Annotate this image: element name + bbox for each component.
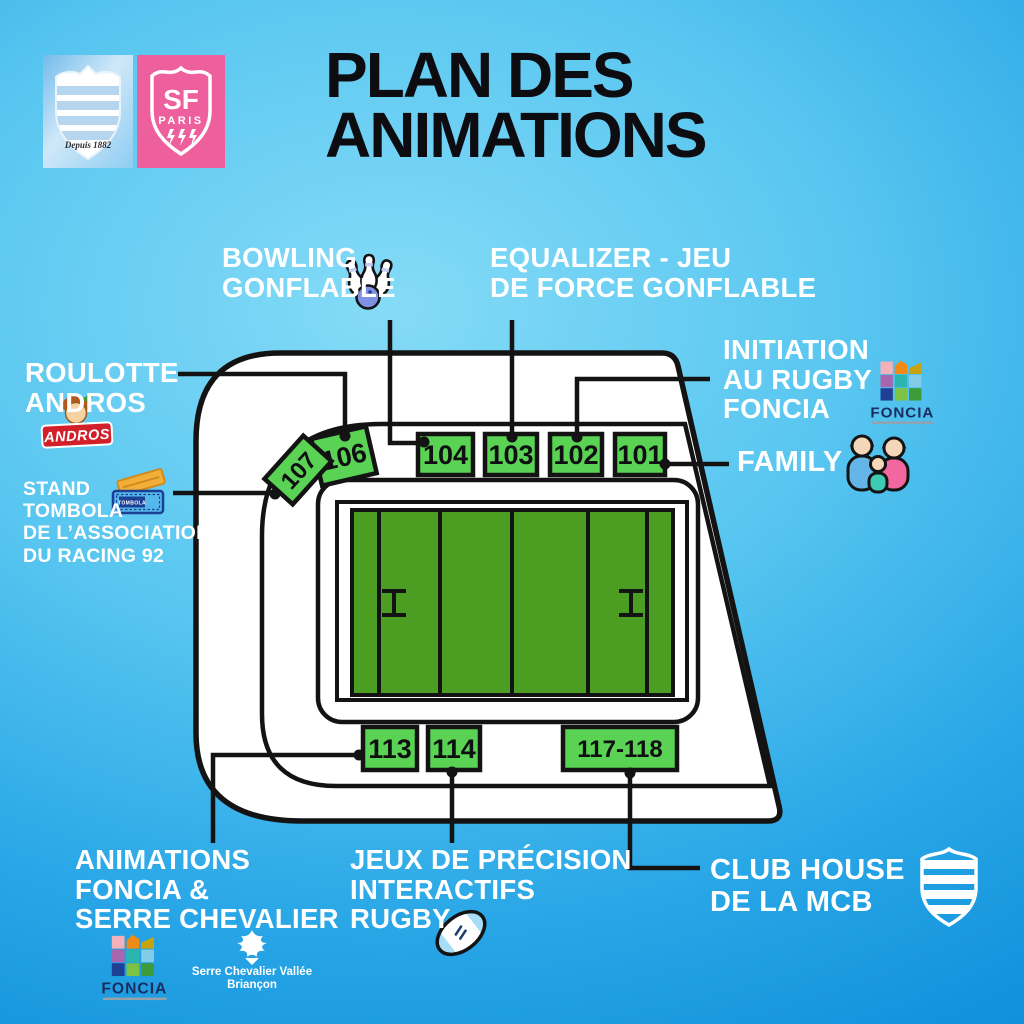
poster-stadium-animations: FONCIA 106 [0,0,1024,1024]
serre-text-line2: Briançon [227,979,277,991]
roulotte-andros-label: ROULOTTE ANDROS [25,358,179,417]
page-title-line2: ANIMATIONS [325,106,706,166]
equalizer-label-line2: DE FORCE GONFLABLE [490,273,816,303]
stand-114: 114 [428,727,480,770]
tombola-label-line4: DU RACING 92 [23,545,211,567]
bowling-label: BOWLING GONFLABLE [222,243,396,302]
mcb-shield-icon [922,849,976,925]
svg-text:103: 103 [488,440,533,470]
equalizer-label: EQUALIZER - JEU DE FORCE GONFLABLE [490,243,816,302]
page-title: PLAN DES ANIMATIONS [325,46,706,165]
stand-101: 101 [615,434,665,475]
svg-text:113: 113 [368,734,412,764]
initiation-label-line3: FONCIA [723,394,872,424]
animations-label-line3: SERRE CHEVALIER [75,904,339,934]
foncia-logo-initiation [870,361,934,424]
stadium-map: 106 107 104 103 102 [173,320,780,868]
family-icon [848,436,908,492]
jeux-label-line3: RUGBY [350,904,632,934]
svg-text:102: 102 [553,440,598,470]
roulotte-label-line1: ROULOTTE [25,358,179,388]
eagle-icon [237,930,267,965]
racing92-logo: Depuis 1882 [43,55,133,168]
bowling-label-line2: GONFLABLE [222,273,396,303]
club-house-label: CLUB HOUSE DE LA MCB [710,855,905,919]
tombola-label-line3: DE L’ASSOCIATION [23,522,211,544]
sf-paris-logo: SF PARIS [137,55,225,168]
jeux-label-line2: INTERACTIFS [350,875,632,905]
tombola-stand-label: STAND TOMBOLA DE L’ASSOCIATION DU RACING… [23,478,211,567]
animations-label-line1: ANIMATIONS [75,845,339,875]
serre-text-line1: Serre Chevalier Vallée [192,966,312,978]
equalizer-label-line1: EQUALIZER - JEU [490,243,816,273]
svg-text:104: 104 [423,440,468,470]
initiation-rugby-label: INITIATION AU RUGBY FONCIA [723,335,872,424]
clubhouse-label-line2: DE LA MCB [710,887,905,919]
bowling-label-line1: BOWLING [222,243,396,273]
svg-text:114: 114 [432,734,476,764]
jeux-precision-label: JEUX DE PRÉCISION INTERACTIFS RUGBY [350,845,632,934]
stand-117-118: 117-118 [563,727,677,770]
initiation-label-line2: AU RUGBY [723,365,872,395]
jeux-label-line1: JEUX DE PRÉCISION [350,845,632,875]
tombola-label-line2: TOMBOLA [23,500,211,522]
animations-foncia-label: ANIMATIONS FONCIA & SERRE CHEVALIER [75,845,339,934]
initiation-label-line1: INITIATION [723,335,872,365]
serre-chevalier-logo: Serre Chevalier Vallée Briançon [192,930,312,991]
roulotte-label-line2: ANDROS [25,388,179,418]
page-title-line1: PLAN DES [325,46,706,106]
sf-city: PARIS [158,115,203,127]
racing-motto: Depuis 1882 [64,140,112,150]
family-label: FAMILY [737,447,842,478]
tombola-label-line1: STAND [23,478,211,500]
animations-label-line2: FONCIA & [75,875,339,905]
stand-113: 113 [363,727,417,770]
family-label-line1: FAMILY [737,447,842,478]
sf-abbr: SF [163,84,199,115]
svg-text:101: 101 [617,440,662,470]
clubhouse-label-line1: CLUB HOUSE [710,855,905,887]
svg-text:117-118: 117-118 [577,736,662,763]
foncia-logo-animations [101,935,167,1000]
